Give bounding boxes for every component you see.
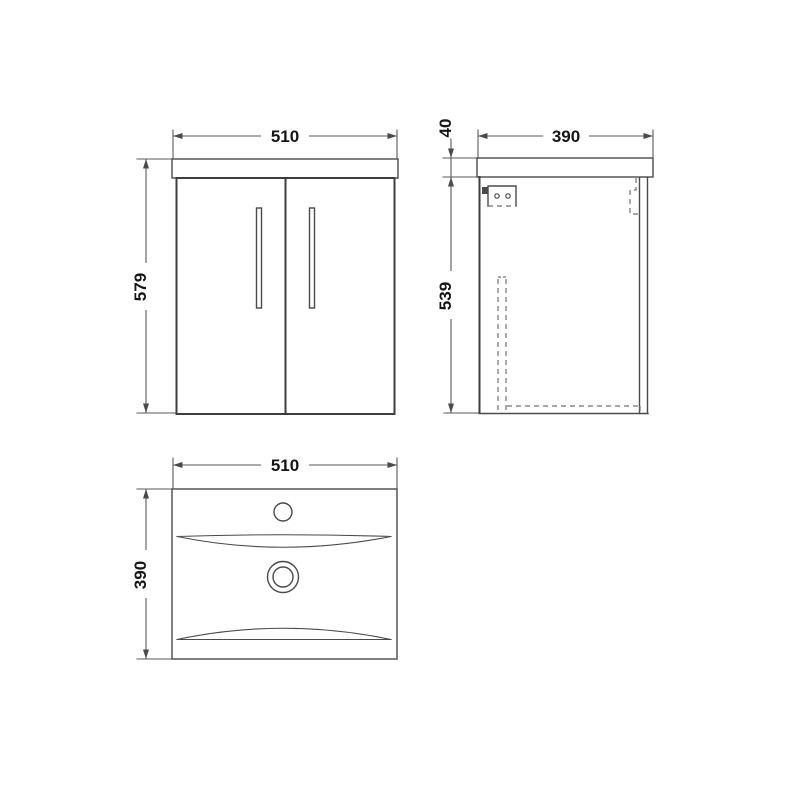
side-cabinet-height-label: 539 [436, 282, 455, 310]
front-right-door-handle [310, 208, 315, 308]
side-cabinet-height-arrow-bottom [448, 404, 454, 414]
side-bottom-hidden-edge [507, 406, 640, 413]
side-door-panel [640, 178, 648, 414]
front-width-arrow-left [173, 133, 183, 139]
plan-depth-arrow-bottom [143, 650, 149, 660]
side-view: 390 40 539 [436, 119, 653, 414]
plan-width-label: 510 [271, 456, 299, 475]
front-view: 510 579 [131, 127, 398, 414]
plan-width-dimension: 510 [173, 456, 397, 489]
front-height-arrow-top [143, 159, 149, 169]
side-bracket-screw-hole-right [506, 194, 510, 198]
vanity-technical-drawing: 510 579 390 [0, 0, 800, 800]
plan-waste-inner-ring [273, 567, 293, 587]
plan-basin-outline [172, 489, 397, 659]
plan-depth-label: 390 [131, 561, 150, 589]
plan-waste-outer-ring [268, 562, 299, 593]
side-waste-pipe-hidden [498, 277, 506, 413]
plan-basin-inner-edge-top [177, 535, 391, 548]
plan-basin-front-lip [177, 628, 391, 639]
front-countertop [172, 159, 398, 178]
side-counter-arrow-bottom [448, 177, 454, 187]
plan-tap-hole [274, 503, 292, 521]
side-bracket-screw-hole-left [495, 194, 499, 198]
side-depth-arrow-right [644, 133, 654, 139]
side-counter-thickness-label: 40 [436, 119, 455, 138]
side-cabinet-height-dimension: 539 [436, 271, 478, 413]
side-wall-bracket-outline [488, 186, 516, 206]
plan-width-arrow-right [388, 462, 398, 468]
plan-depth-dimension: 390 [131, 489, 172, 659]
side-countertop [477, 158, 653, 177]
side-depth-arrow-left [478, 133, 488, 139]
side-counter-extension-lines [443, 158, 477, 177]
front-width-label: 510 [271, 127, 299, 146]
plan-depth-arrow-top [143, 489, 149, 499]
side-wall-bracket [482, 186, 516, 206]
plan-width-arrow-left [173, 462, 183, 468]
front-left-door-handle [257, 208, 262, 308]
plan-view: 510 390 [131, 456, 397, 659]
side-wall-bracket-tab [482, 187, 488, 194]
side-concealed-hinge-hidden [630, 178, 639, 214]
front-width-dimension: 510 [173, 127, 397, 159]
side-counter-arrow-top [448, 149, 454, 159]
side-counter-thickness-dimension: 40 [436, 119, 477, 413]
front-height-dimension: 579 [131, 159, 176, 413]
front-height-label: 579 [131, 273, 150, 301]
front-width-arrow-right [388, 133, 398, 139]
side-depth-dimension: 390 [478, 127, 653, 158]
side-depth-label: 390 [552, 127, 580, 146]
front-height-arrow-bottom [143, 404, 149, 414]
